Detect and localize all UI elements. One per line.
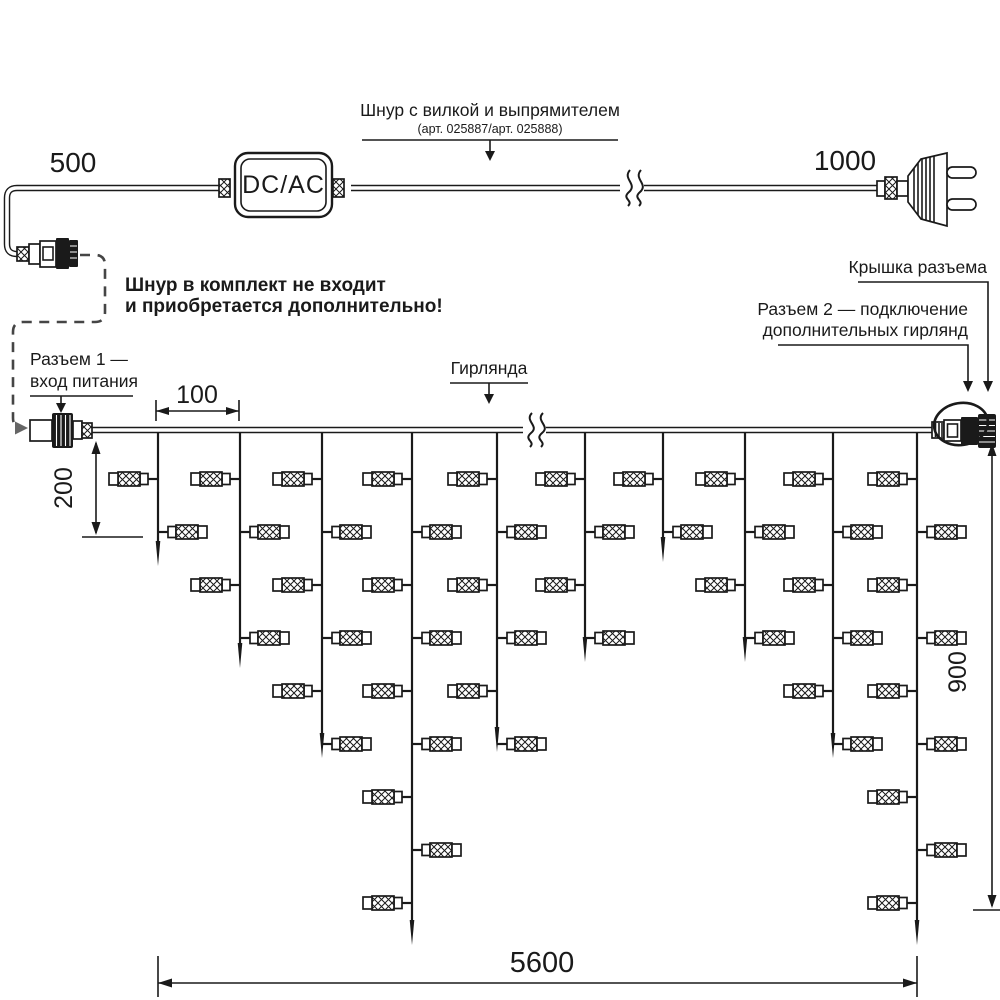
lamp-cap — [957, 632, 966, 644]
cap-label: Крышка разъема — [848, 257, 987, 277]
lamp — [448, 472, 497, 486]
lamp-cap — [696, 579, 705, 591]
dim-100-value: 100 — [176, 381, 218, 409]
garland-drop — [614, 433, 712, 562]
lamp-cap — [784, 685, 793, 697]
lamp — [448, 578, 497, 592]
lamp-body — [763, 631, 785, 645]
lamp-cap — [785, 632, 794, 644]
arrow-down-icon — [983, 381, 993, 392]
lamp-body — [340, 525, 362, 539]
lamp-body — [603, 525, 625, 539]
lamp-body — [372, 790, 394, 804]
drop-tip — [238, 643, 243, 668]
lamp-body — [545, 472, 567, 486]
dashed-arrow-icon — [15, 422, 28, 435]
not-included-dashed-path — [13, 255, 105, 428]
drop-tip — [156, 541, 161, 566]
lamp-cap — [536, 579, 545, 591]
lamp-cap — [537, 738, 546, 750]
converter-right-terminal — [333, 179, 344, 197]
converter-left-terminal — [219, 179, 230, 197]
dim-900-height: 900 — [944, 443, 1000, 910]
lamp-body — [681, 525, 703, 539]
lamp-body — [935, 631, 957, 645]
note-line2: и приобретается дополнительно! — [125, 296, 443, 317]
lamp — [497, 525, 546, 539]
lamp-cap — [452, 526, 461, 538]
lamp — [868, 578, 917, 592]
lamp — [109, 472, 158, 486]
lamp-body — [118, 472, 140, 486]
lamp-body — [372, 684, 394, 698]
lamp-body — [545, 578, 567, 592]
lamp-cap — [280, 632, 289, 644]
lamp-body — [340, 631, 362, 645]
lamp — [833, 631, 882, 645]
lamp-cap — [536, 473, 545, 485]
lamp-body — [258, 525, 280, 539]
lamp-cap — [452, 738, 461, 750]
lamp-cap — [696, 473, 705, 485]
mains-plug — [877, 153, 976, 226]
lamp-cap — [363, 579, 372, 591]
diagram-page: DC/AC 500 1000 Шнур с вилкой и — [0, 0, 1000, 1000]
lamp-cap — [191, 473, 200, 485]
lamp-cap — [363, 791, 372, 803]
garland-drops — [109, 433, 966, 945]
garland-drop — [363, 433, 461, 945]
lamp-body — [340, 737, 362, 751]
garland-drop — [273, 433, 371, 758]
drop-tip — [410, 920, 415, 945]
drop-tip — [831, 733, 836, 758]
lamp-cap — [868, 791, 877, 803]
lamp-body — [200, 578, 222, 592]
connector2-label-line2: дополнительных гирлянд — [763, 320, 968, 340]
lamp-cap — [198, 526, 207, 538]
drop-tip — [743, 637, 748, 662]
lamp — [363, 790, 412, 804]
garland-diagram: DC/AC 500 1000 Шнур с вилкой и — [0, 0, 1000, 1000]
garland-leader-line — [450, 383, 528, 394]
lamp-cap — [537, 632, 546, 644]
lamp — [363, 472, 412, 486]
lamp — [833, 737, 882, 751]
lamp-body — [372, 578, 394, 592]
lamp-body — [372, 472, 394, 486]
drop-tip — [661, 537, 666, 562]
lamp — [412, 843, 461, 857]
lamp-cap — [362, 526, 371, 538]
lamp — [363, 684, 412, 698]
lamp-cap — [957, 526, 966, 538]
lamp-cap — [625, 632, 634, 644]
lamp-body — [457, 684, 479, 698]
lamp-cap — [109, 473, 118, 485]
lamp-cap — [625, 526, 634, 538]
lamp — [322, 631, 371, 645]
lamp-body — [282, 578, 304, 592]
lamp — [696, 578, 745, 592]
lamp-cap — [703, 526, 712, 538]
lamp-body — [851, 525, 873, 539]
drop-tip — [495, 727, 500, 752]
lamp-cap — [363, 473, 372, 485]
garland-drop — [536, 433, 634, 662]
lamp-cap — [784, 579, 793, 591]
lamp — [240, 631, 289, 645]
garland-label: Гирлянда — [451, 358, 528, 378]
dim-900-value: 900 — [944, 651, 972, 693]
lamp-body — [877, 896, 899, 910]
lamp — [784, 578, 833, 592]
arrow-down-icon — [963, 381, 973, 392]
lamp — [497, 631, 546, 645]
power-cord-section: DC/AC 500 1000 Шнур с вилкой и — [7, 100, 976, 435]
lamp — [868, 472, 917, 486]
dim-5600-length: 5600 — [158, 947, 917, 997]
lamp-cap — [191, 579, 200, 591]
lamp-body — [851, 631, 873, 645]
lamp — [917, 843, 966, 857]
lamp — [273, 578, 322, 592]
dim-100-spacing: 100 — [156, 381, 239, 421]
lamp-cap — [784, 473, 793, 485]
dc-output-connector — [17, 238, 78, 269]
lamp-body — [877, 472, 899, 486]
plug-collar — [885, 177, 897, 199]
lamp-body — [603, 631, 625, 645]
lamp — [696, 472, 745, 486]
drop-tip — [320, 733, 325, 758]
lamp-cap — [273, 579, 282, 591]
dim-200-first-drop: 200 — [50, 441, 143, 537]
lamp-cap — [873, 632, 882, 644]
dcac-converter: DC/AC — [219, 153, 344, 217]
lamp-body — [515, 631, 537, 645]
lamp — [191, 578, 240, 592]
input-connector-1 — [30, 413, 92, 448]
lamp-body — [935, 737, 957, 751]
arrow-down-icon — [485, 151, 495, 161]
lamp — [322, 737, 371, 751]
lamp-body — [515, 525, 537, 539]
dim-5600-value: 5600 — [510, 947, 575, 979]
lamp — [585, 525, 634, 539]
plug-prong-top — [947, 167, 976, 178]
lamp-body — [793, 684, 815, 698]
arrow-down-icon — [56, 403, 66, 413]
lamp-cap — [448, 685, 457, 697]
lamp-body — [705, 578, 727, 592]
lamp-body — [705, 472, 727, 486]
drop-tip — [915, 920, 920, 945]
lamp-body — [430, 631, 452, 645]
lamp-body — [430, 737, 452, 751]
lamp-body — [372, 896, 394, 910]
lamp-cap — [537, 526, 546, 538]
connector1-leader-line — [30, 396, 133, 404]
lamp — [585, 631, 634, 645]
garland-drop — [696, 433, 794, 662]
lamp-cap — [362, 632, 371, 644]
lamp-body — [176, 525, 198, 539]
lamp — [536, 578, 585, 592]
lamp — [784, 472, 833, 486]
lamp-body — [623, 472, 645, 486]
lamp-cap — [273, 685, 282, 697]
plug-neck — [877, 181, 885, 196]
dim-1000: 1000 — [814, 145, 876, 176]
dim-500: 500 — [50, 147, 97, 178]
lamp — [917, 737, 966, 751]
lamp — [833, 525, 882, 539]
cord-label: Шнур с вилкой и выпрямителем — [360, 100, 620, 120]
lamp-body — [430, 843, 452, 857]
lamp-cap — [448, 473, 457, 485]
lamp — [322, 525, 371, 539]
lamp-body — [793, 472, 815, 486]
garland-drop — [109, 433, 207, 566]
lamp — [663, 525, 712, 539]
dim-200-value: 200 — [50, 467, 78, 509]
arrow-down-icon — [484, 394, 494, 404]
lamp-cap — [868, 685, 877, 697]
lamp-cap — [273, 473, 282, 485]
connector1-label-line2: вход питания — [30, 371, 138, 391]
garland-drop — [448, 433, 546, 752]
lamp-cap — [363, 685, 372, 697]
lamp-cap — [614, 473, 623, 485]
lamp — [448, 684, 497, 698]
lamp-cap — [363, 897, 372, 909]
lamp — [273, 684, 322, 698]
lamp — [917, 631, 966, 645]
lamp-body — [457, 578, 479, 592]
lamp — [868, 684, 917, 698]
lamp-cap — [873, 526, 882, 538]
lamp-cap — [452, 632, 461, 644]
lamp-cap — [280, 526, 289, 538]
lamp — [363, 896, 412, 910]
lamp — [614, 472, 663, 486]
lamp — [191, 472, 240, 486]
lamp-body — [793, 578, 815, 592]
lamp — [917, 525, 966, 539]
lamp — [497, 737, 546, 751]
lamp-body — [877, 578, 899, 592]
lamp — [745, 631, 794, 645]
lamp-body — [877, 684, 899, 698]
lamp-body — [282, 684, 304, 698]
lamp-body — [282, 472, 304, 486]
converter-label: DC/AC — [242, 171, 325, 199]
drop-tip — [583, 637, 588, 662]
lamp — [363, 578, 412, 592]
lamp-body — [457, 472, 479, 486]
note-line1: Шнур в комплект не входит — [125, 275, 386, 296]
cord-part-numbers: (арт. 025887/арт. 025888) — [417, 122, 562, 136]
garland-drop — [191, 433, 289, 668]
cord-leader-line — [362, 140, 618, 152]
lamp-body — [935, 843, 957, 857]
lamp-body — [935, 525, 957, 539]
lamp-cap — [868, 897, 877, 909]
lamp-body — [763, 525, 785, 539]
lamp-body — [851, 737, 873, 751]
lamp-cap — [873, 738, 882, 750]
lamp-cap — [868, 473, 877, 485]
lamp-body — [258, 631, 280, 645]
connector2-leader-line — [778, 345, 968, 382]
lamp — [240, 525, 289, 539]
lamp-body — [200, 472, 222, 486]
lamp — [412, 631, 461, 645]
lamp-body — [430, 525, 452, 539]
lamp-cap — [785, 526, 794, 538]
lamp — [745, 525, 794, 539]
lamp — [158, 525, 207, 539]
garland-section: Гирлянда Разъем 1 — вход питания Крышка … — [30, 257, 1000, 997]
lamp — [273, 472, 322, 486]
lamp-body — [515, 737, 537, 751]
lamp — [868, 896, 917, 910]
connector2-label-line1: Разъем 2 — подключение — [757, 299, 968, 319]
lamp-cap — [868, 579, 877, 591]
lamp-cap — [362, 738, 371, 750]
lamp — [412, 525, 461, 539]
connector1-label-line1: Разъем 1 — — [30, 349, 128, 369]
lamp-cap — [452, 844, 461, 856]
lamp-cap — [957, 738, 966, 750]
lamp-body — [877, 790, 899, 804]
plug-prong-bottom — [947, 199, 976, 210]
lamp — [784, 684, 833, 698]
lamp — [868, 790, 917, 804]
lamp — [536, 472, 585, 486]
output-connector-2 — [931, 399, 996, 449]
lamp-cap — [957, 844, 966, 856]
lamp — [412, 737, 461, 751]
lamp-cap — [448, 579, 457, 591]
